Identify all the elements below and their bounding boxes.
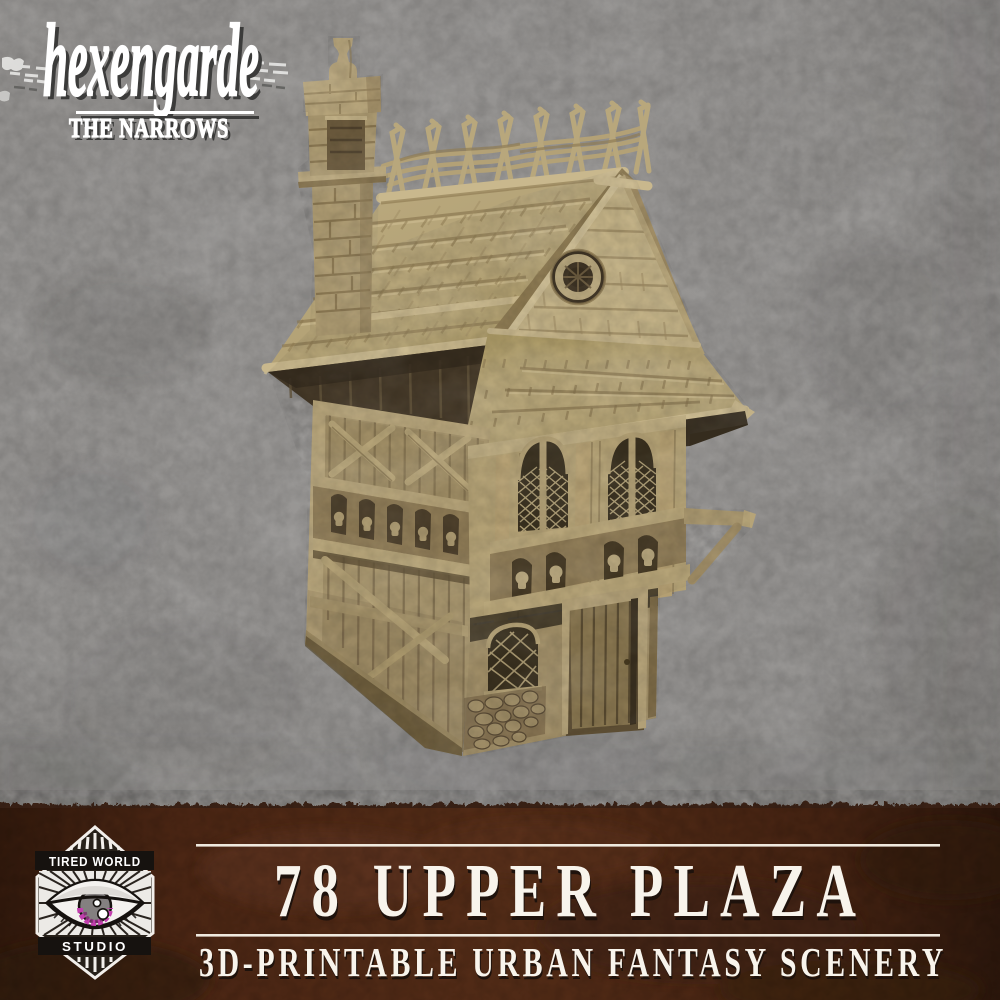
svg-text:THE NARROWS: THE NARROWS	[69, 113, 229, 143]
svg-text:3D-PRINTABLE URBAN FANTASY SCE: 3D-PRINTABLE URBAN FANTASY SCENERY	[199, 939, 947, 985]
svg-text:78 UPPER PLAZA: 78 UPPER PLAZA	[274, 849, 866, 933]
svg-text:TIRED WORLD: TIRED WORLD	[49, 854, 141, 869]
svg-text:STUDIO: STUDIO	[62, 939, 128, 954]
svg-text:hexengarde: hexengarde	[43, 3, 259, 118]
